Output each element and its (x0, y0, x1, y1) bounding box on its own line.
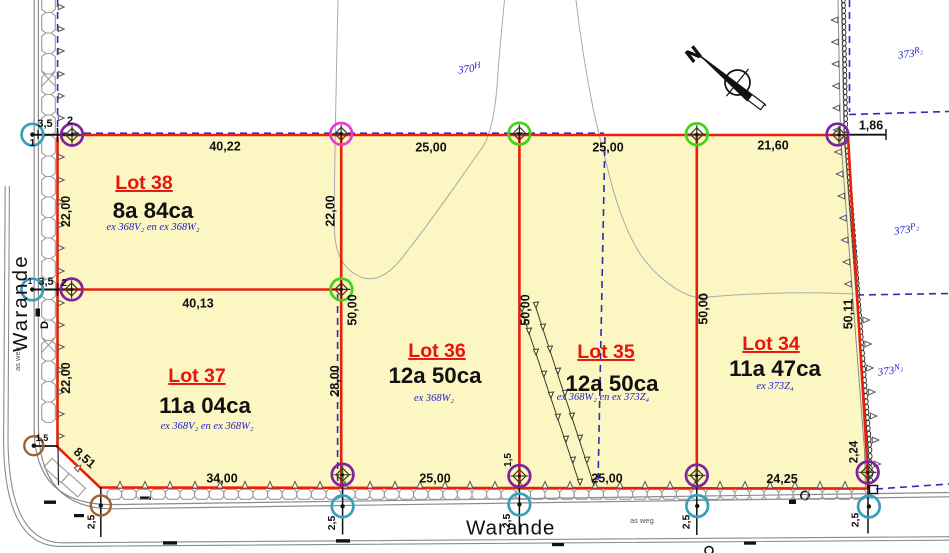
svg-text:22,00: 22,00 (59, 362, 73, 393)
svg-text:3,5: 3,5 (37, 118, 52, 130)
svg-text:1: 1 (30, 138, 36, 149)
svg-text:Lot 37: Lot 37 (168, 365, 225, 387)
svg-text:ex 368W₂: ex 368W₂ (414, 393, 454, 404)
svg-text:34,00: 34,00 (206, 472, 237, 486)
svg-text:N: N (682, 42, 705, 66)
svg-text:2,5: 2,5 (681, 515, 693, 530)
svg-text:25,00: 25,00 (591, 472, 622, 486)
svg-text:40,22: 40,22 (209, 140, 240, 154)
svg-text:2,5: 2,5 (86, 515, 98, 530)
svg-text:8a 84ca: 8a 84ca (113, 198, 194, 223)
svg-text:ex 368W₂ en ex 373Z₄: ex 368W₂ en ex 373Z₄ (557, 392, 650, 403)
svg-text:373P₂: 373P₂ (892, 220, 920, 238)
svg-text:11a 47ca: 11a 47ca (729, 356, 821, 381)
svg-text:2: 2 (61, 278, 67, 289)
svg-text:373R₂: 373R₂ (896, 44, 924, 62)
svg-text:ex 373Z₄: ex 373Z₄ (756, 381, 794, 392)
svg-text:25,00: 25,00 (415, 141, 446, 155)
svg-text:2: 2 (67, 115, 73, 127)
svg-text:as weg: as weg (13, 347, 22, 371)
svg-text:3,5: 3,5 (38, 276, 53, 288)
svg-text:Lot 34: Lot 34 (742, 333, 800, 355)
svg-text:50,00: 50,00 (346, 294, 360, 325)
svg-text:21,60: 21,60 (757, 139, 788, 153)
svg-text:Lot 35: Lot 35 (577, 341, 635, 363)
svg-text:D: D (39, 321, 51, 329)
svg-text:Warande: Warande (9, 254, 32, 352)
svg-text:40,13: 40,13 (182, 297, 213, 311)
svg-text:11a 04ca: 11a 04ca (159, 393, 251, 418)
svg-text:12a 50ca: 12a 50ca (389, 363, 483, 388)
svg-text:Lot 38: Lot 38 (115, 172, 173, 194)
svg-text:24,25: 24,25 (766, 472, 797, 486)
svg-text:373N₂: 373N₂ (876, 361, 904, 379)
svg-text:2,5: 2,5 (326, 516, 338, 531)
svg-text:22,00: 22,00 (324, 195, 338, 226)
svg-text:1,5: 1,5 (36, 433, 49, 443)
svg-text:50,00: 50,00 (697, 293, 711, 324)
svg-text:ex 368V₂ en ex 368W₂: ex 368V₂ en ex 368W₂ (160, 421, 253, 432)
svg-text:25,00: 25,00 (592, 141, 623, 155)
svg-text:as weg: as weg (630, 516, 654, 525)
svg-text:1,86: 1,86 (859, 119, 883, 133)
svg-text:50,11: 50,11 (842, 299, 856, 330)
svg-text:28,00: 28,00 (328, 365, 342, 396)
svg-text:ex 368V₂ en ex 368W₂: ex 368V₂ en ex 368W₂ (106, 222, 199, 233)
svg-text:370H: 370H (456, 59, 482, 76)
svg-text:2,24: 2,24 (849, 440, 861, 463)
svg-text:1,5: 1,5 (503, 453, 514, 467)
svg-text:25,00: 25,00 (419, 472, 450, 486)
svg-text:22,00: 22,00 (59, 196, 73, 227)
svg-text:Lot 36: Lot 36 (408, 340, 466, 362)
svg-text:Warande: Warande (466, 517, 555, 540)
svg-text:2,5: 2,5 (850, 513, 862, 528)
svg-text:50,00: 50,00 (519, 294, 533, 325)
